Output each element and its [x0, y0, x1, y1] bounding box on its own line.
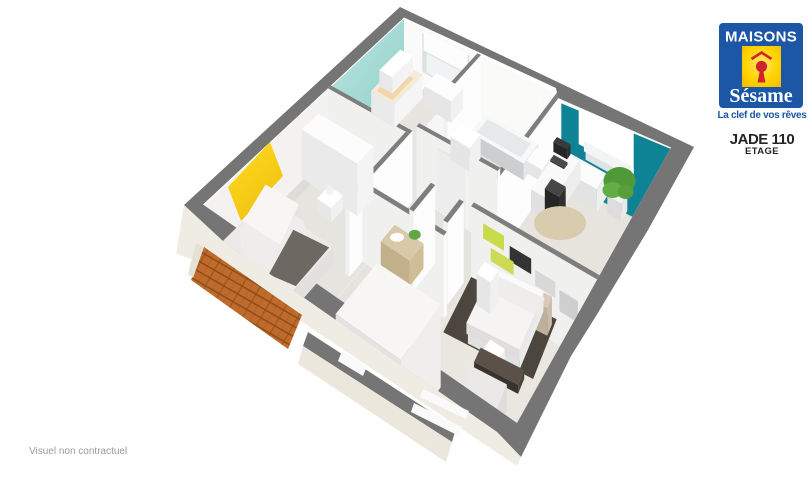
svg-text:Sésame: Sésame: [729, 85, 792, 107]
svg-text:MAISONS: MAISONS: [725, 29, 797, 46]
